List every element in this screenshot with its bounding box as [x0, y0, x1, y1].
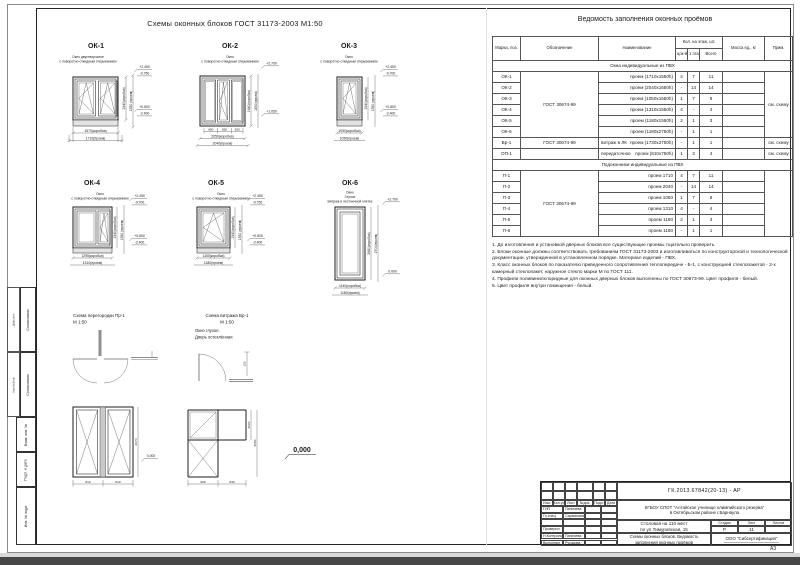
cell-name: проем 1050: [599, 193, 676, 204]
cell-qty-floor0: 4: [676, 72, 688, 83]
vitrage-scheme-vr1: Схема витража Вр-1 М 1:50 Окно глухое. Д…: [188, 313, 257, 487]
table-row: ОК-1ГОСТ 30674-99проем (1710х1550h)4711с…: [493, 72, 793, 83]
cell-mass: [723, 138, 765, 149]
cell-mass: [723, 94, 765, 105]
cell-mark: П-5: [493, 215, 521, 226]
cell-note: см. схему: [765, 72, 793, 138]
svg-text:-0.700: -0.700: [386, 72, 396, 76]
cell-qty-floor0: 2: [676, 116, 688, 127]
cell-mark: П-4: [493, 204, 521, 215]
svg-text:650: 650: [235, 127, 240, 131]
cell-name: проем (1710х1550h): [599, 72, 676, 83]
cell-mass: [723, 226, 765, 237]
cell-mass: [723, 127, 765, 138]
sheet-name: Схемы оконных блоков. Ведомость заполнен…: [617, 533, 711, 546]
svg-text:2050(коробка): 2050(коробка): [211, 134, 233, 138]
svg-text:1140(коробка): 1140(коробка): [339, 284, 361, 288]
cell-designation: ГОСТ 30674-99: [521, 72, 599, 138]
svg-text:-2.400: -2.400: [135, 241, 145, 245]
cell-name: проем 1180: [599, 215, 676, 226]
svg-text:с поворотно-откидным открывани: с поворотно-откидным открыванием: [59, 60, 117, 64]
window-figure-ok1: ОК-1 Окно двустворчатое с поворотно-отки…: [59, 43, 152, 142]
svg-text:-0.750: -0.750: [253, 201, 263, 205]
strip-podp-data: Подп. и дата: [16, 452, 36, 487]
col-note: Прим.: [765, 37, 793, 61]
tb-name: [563, 526, 585, 533]
cell-name: передаточноепроем (810х750h): [599, 149, 676, 160]
window-id-label: ОК-1: [88, 43, 104, 50]
sheets-total: [765, 526, 792, 533]
tb-role: Выполнил: [541, 540, 563, 547]
svg-text:1295(коробка): 1295(коробка): [81, 254, 103, 258]
drawing-sheet: Схемы оконных блоков ГОСТ 31173-2003 М1:…: [0, 0, 800, 565]
cell-qty-floor0: 4: [676, 171, 688, 182]
scan-edge-dark: [0, 557, 800, 565]
svg-text:+2.700: +2.700: [387, 198, 398, 202]
table-group-row: Подоконники индивидуальные из ПВХ: [493, 160, 793, 171]
svg-text:+2.450: +2.450: [252, 194, 263, 198]
svg-text:1180(проем): 1180(проем): [204, 261, 223, 265]
note-item: 5. Цвет профиля внутри помещения - белый…: [492, 284, 794, 290]
svg-text:+0.800: +0.800: [134, 234, 145, 238]
table-row: ОП-1передаточноепроем (810х750h)134см. с…: [493, 149, 793, 160]
svg-text:Окно: Окно: [96, 192, 104, 196]
cell-qty-total: 3: [700, 116, 723, 127]
window-id-label: ОК-4: [84, 180, 100, 187]
svg-text:+2.700: +2.700: [266, 62, 277, 66]
cell-qty-total: 4: [700, 105, 723, 116]
svg-text:-2.400: -2.400: [253, 241, 263, 245]
title-block: Изм. Кол.уч Лист №док. Подп. Дата ГИП Па…: [540, 481, 791, 545]
svg-text:Окно: Окно: [226, 55, 234, 59]
tb-name: Паничева: [563, 506, 585, 513]
cell-qty-floor0: -: [676, 138, 688, 149]
window-figure-ok4: ОК-4 Окно с поворотно-откидным открывани…: [70, 180, 147, 265]
cell-mark: ОК-4: [493, 105, 521, 116]
table-group-row: Окна индивидуальные из ПВХ: [493, 61, 793, 72]
col-qty: Кол. на этаж, шт.: [676, 37, 723, 49]
cell-qty-floor1: 7: [688, 72, 700, 83]
strip-agreed-1-name: Дубровин: [7, 287, 20, 352]
svg-text:+0.800: +0.800: [385, 105, 396, 109]
cell-mark: П-3: [493, 193, 521, 204]
tb-role: Н.Контроль: [541, 533, 563, 540]
svg-text:-2.400: -2.400: [386, 112, 396, 116]
svg-text:Витраж в лестничной клетке: Витраж в лестничной клетке: [328, 200, 373, 204]
cell-qty-floor1: -: [688, 105, 700, 116]
tb-role: Гл.спец: [541, 513, 563, 520]
cell-mark: ОК-2: [493, 83, 521, 94]
strip-agreed-2: Согласовано: [20, 352, 36, 417]
cell-qty-total: 8: [700, 94, 723, 105]
svg-text:-0.700: -0.700: [135, 201, 145, 205]
svg-text:с поворотно-откидным открывани: с поворотно-откидным открыванием: [201, 60, 259, 64]
cell-mark: ОП-1: [493, 149, 521, 160]
cell-qty-floor1: 1: [688, 215, 700, 226]
cell-mass: [723, 204, 765, 215]
svg-text:0,000: 0,000: [147, 454, 156, 458]
format-label: А3: [770, 546, 776, 552]
cell-mark: ОК-5: [493, 116, 521, 127]
table-row: Вр-1ГОСТ 30674-99витраж в ЛКпроем (1730х…: [493, 138, 793, 149]
svg-text:120: 120: [243, 361, 247, 366]
svg-text:Окно: Окно: [346, 191, 354, 195]
svg-text:М 1:50: М 1:50: [220, 320, 234, 325]
cell-qty-total: 1: [700, 226, 723, 237]
strip-agreed-1: Согласовано: [20, 287, 36, 352]
cell-mark: П-2: [493, 182, 521, 193]
strip-vzam-inv: Взам. инв. №: [16, 417, 36, 452]
window-figure-ok3: ОК-3 Окно с поворотно-откидным открывани…: [320, 43, 398, 141]
note-item: 1. До изготовления и установкой дверных …: [492, 243, 794, 249]
tb-name: Сарманаева: [563, 513, 585, 520]
cell-qty-floor1: 7: [688, 171, 700, 182]
cell-qty-floor1: 1: [688, 226, 700, 237]
cell-qty-floor1: 7: [688, 94, 700, 105]
svg-text:2070: 2070: [134, 438, 138, 445]
cell-mass: [723, 149, 765, 160]
window-id-label: ОК-6: [342, 180, 358, 187]
cell-designation: ГОСТ 30674-99: [521, 171, 599, 237]
svg-text:2050: 2050: [253, 439, 257, 446]
cell-mass: [723, 105, 765, 116]
group-label: Окна индивидуальные из ПВХ: [493, 61, 793, 72]
cell-qty-total: 14: [700, 83, 723, 94]
svg-text:1160(коробка): 1160(коробка): [202, 254, 224, 258]
cell-name: проем 2040: [599, 182, 676, 193]
cell-name: проем 1180: [599, 226, 676, 237]
organization-line2: в Октябрьском районе г.Барнаула: [670, 510, 739, 516]
svg-text:Окно двустворчатое: Окно двустворчатое: [72, 55, 104, 59]
svg-text:-2.400: -2.400: [140, 112, 150, 116]
col-floor1: 1 этаж: [688, 49, 700, 61]
cell-qty-floor0: 1: [676, 149, 688, 160]
svg-text:Схема витража Вр-1: Схема витража Вр-1: [205, 313, 249, 318]
openings-table-grid: Марка, поз.ОбозначениеНаименованиеКол. н…: [492, 36, 793, 237]
cell-qty-floor1: -: [688, 204, 700, 215]
svg-text:810: 810: [115, 480, 120, 484]
openings-table: Марка, поз.ОбозначениеНаименованиеКол. н…: [492, 36, 792, 237]
tb-role: ГИП: [541, 506, 563, 513]
cell-mass: [723, 116, 765, 127]
strip-agreed-2-name: Коробейник: [7, 352, 20, 417]
svg-text:+1.050: +1.050: [266, 110, 277, 114]
svg-text:830: 830: [229, 480, 234, 484]
cell-mark: Вр-1: [493, 138, 521, 149]
tb-name: [563, 519, 585, 526]
window-id-label: ОК-2: [222, 43, 238, 50]
cell-qty-floor0: 4: [676, 105, 688, 116]
col-total: Всего: [700, 49, 723, 61]
cell-mark: ОК-3: [493, 94, 521, 105]
svg-text:650: 650: [222, 127, 227, 131]
window-figure-ok6: ОК-6 Окно Глухое Витраж в лестничной кле…: [328, 180, 400, 295]
svg-text:+2.450: +2.450: [134, 194, 145, 198]
note-item: 3. Класс оконных блоков по показателю пр…: [492, 263, 794, 275]
cell-qty-floor0: 1: [676, 193, 688, 204]
svg-text:1310(проем): 1310(проем): [83, 261, 103, 265]
cell-designation: ГОСТ 30674-99: [521, 138, 599, 149]
svg-text:1540(коробка): 1540(коробка): [364, 87, 368, 109]
window-id-label: ОК-3: [341, 43, 357, 50]
svg-text:М 1:50: М 1:50: [73, 320, 87, 325]
svg-text:1180(проем): 1180(проем): [340, 291, 359, 295]
company-name: ООО "Сибсертификация": [711, 533, 792, 546]
cell-name: проем (1310х1550h): [599, 105, 676, 116]
col-designation: Обозначение: [521, 37, 599, 61]
cell-designation: [521, 149, 599, 160]
svg-text:1540(коробка): 1540(коробка): [122, 87, 126, 109]
svg-text:1570(коробка): 1570(коробка): [84, 129, 106, 133]
company-fine-print: [724, 542, 779, 543]
cell-qty-total: 14: [700, 182, 723, 193]
tb-name: Русакова: [563, 540, 585, 547]
cell-mark: ОК-6: [493, 127, 521, 138]
svg-text:1050(коробка): 1050(коробка): [338, 129, 360, 133]
cell-qty-floor0: -: [676, 182, 688, 193]
cell-qty-total: 1: [700, 138, 723, 149]
svg-text:2680(коробка): 2680(коробка): [367, 232, 371, 254]
svg-text:Окно: Окно: [217, 192, 225, 196]
svg-text:1550 (проем): 1550 (проем): [120, 220, 124, 241]
cell-name: проем (1180х1550h): [599, 116, 676, 127]
svg-text:+0.800: +0.800: [252, 234, 263, 238]
svg-text:1550 (проем): 1550 (проем): [129, 91, 133, 112]
window-id-label: ОК-5: [208, 180, 224, 187]
cell-name: проем (1180х2750h): [599, 127, 676, 138]
object-name: Столовая на 110 мест по ул.Тимуровская, …: [617, 520, 711, 533]
cell-mass: [723, 171, 765, 182]
organization-name: КГБОУ СПОТ "Алтайское училище олимпийско…: [617, 500, 792, 520]
svg-text:с поворотно-откидным открывани: с поворотно-откидным открыванием: [71, 197, 129, 201]
cell-mark: П-1: [493, 171, 521, 182]
svg-text:+2.450: +2.450: [385, 65, 396, 69]
cell-qty-total: 8: [700, 193, 723, 204]
table-row: П-1ГОСТ 30674-99проем 17104711: [493, 171, 793, 182]
cell-qty-floor1: 14: [688, 182, 700, 193]
cell-qty-floor1: 1: [688, 127, 700, 138]
cell-name: проем (1050х1550h): [599, 94, 676, 105]
svg-text:2700(проем): 2700(проем): [374, 234, 378, 254]
svg-text:с поворотно-откидным открывани: с поворотно-откидным открыванием: [320, 60, 378, 64]
cell-name: проем 1310: [599, 204, 676, 215]
col-name: Наименование: [599, 37, 676, 61]
cell-qty-floor0: -: [676, 83, 688, 94]
svg-text:Окно: Окно: [345, 55, 353, 59]
cell-qty-floor1: 1: [688, 116, 700, 127]
cell-qty-floor0: 1: [676, 94, 688, 105]
svg-text:650: 650: [208, 127, 213, 131]
svg-text:2040(проем): 2040(проем): [213, 141, 233, 145]
cell-qty-floor1: 7: [688, 193, 700, 204]
svg-text:0,000: 0,000: [293, 447, 311, 454]
col-floor0: цок-й этаж: [676, 49, 688, 61]
svg-text:Глухое: Глухое: [345, 195, 356, 199]
svg-text:1650(проем): 1650(проем): [254, 91, 258, 111]
svg-text:900: 900: [200, 480, 205, 484]
svg-text:с поворотно-откидным открывани: с поворотно-откидным открыванием: [192, 197, 250, 201]
svg-text:810: 810: [85, 480, 90, 484]
tb-role: [541, 519, 563, 526]
cell-qty-total: 1: [700, 127, 723, 138]
general-notes: 1. До изготовления и установкой дверных …: [492, 243, 794, 291]
svg-text:Схема перегородки Пр-1: Схема перегородки Пр-1: [73, 313, 125, 318]
svg-text:+2.450: +2.450: [139, 65, 150, 69]
svg-text:1540(коробка): 1540(коробка): [231, 216, 235, 238]
svg-text:Дверь остеклённая: Дверь остеклённая: [195, 335, 233, 340]
partition-scheme-pr1: Схема перегородки Пр-1 М 1:50 810 810 20…: [73, 313, 158, 487]
note-item: 2. Блоки оконные должны соответствовать …: [492, 250, 794, 262]
svg-text:Окно глухое.: Окно глухое.: [195, 328, 220, 333]
cell-qty-total: 3: [700, 215, 723, 226]
cell-qty-total: 11: [700, 171, 723, 182]
cell-note: см. схему: [765, 149, 793, 160]
cell-name: проем (2040х1650h): [599, 83, 676, 94]
group-label: Подоконники индивидуальные из ПВХ: [493, 160, 793, 171]
svg-text:1640(коробка): 1640(коробка): [247, 90, 251, 112]
col-mark: Марка, поз.: [493, 37, 521, 61]
cell-mark: ОК-1: [493, 72, 521, 83]
svg-text:1550 (проем): 1550 (проем): [238, 220, 242, 241]
svg-text:2000: 2000: [247, 421, 251, 428]
svg-text:0.000: 0.000: [388, 270, 397, 274]
cell-qty-floor1: 14: [688, 83, 700, 94]
cell-qty-floor0: 2: [676, 215, 688, 226]
zero-level-mark: 0,000: [285, 447, 316, 459]
cell-mass: [723, 215, 765, 226]
svg-text:-0.750: -0.750: [140, 72, 150, 76]
strip-inv-podl: Инв. № подл.: [16, 487, 36, 545]
cell-mass: [723, 182, 765, 193]
cell-mass: [723, 193, 765, 204]
svg-text:1710(проем): 1710(проем): [86, 136, 106, 140]
svg-text:1550 (проем): 1550 (проем): [371, 91, 375, 112]
col-mass: Масса ед., кг: [723, 37, 765, 61]
svg-text:+0.800: +0.800: [139, 105, 150, 109]
cell-qty-floor0: 4: [676, 204, 688, 215]
sheet-number: 11: [738, 526, 765, 533]
stage-value: Р: [711, 526, 738, 533]
window-figure-ok5: ОК-5 Окно с поворотно-откидным открывани…: [192, 180, 265, 265]
cell-mass: [723, 72, 765, 83]
document-code: ГК.2013.67842(20-13) - АР: [617, 482, 792, 500]
note-item: 4. Профили поливинилхлоридные для оконны…: [492, 277, 794, 283]
window-figure-ok2: ОК-2 Окно с поворотно-откидным открывани…: [196, 43, 280, 147]
cell-qty-floor1: 3: [688, 149, 700, 160]
cell-qty-total: 4: [700, 204, 723, 215]
cell-name: проем 1710: [599, 171, 676, 182]
cell-name: витраж в ЛКпроем (1730х2750h): [599, 138, 676, 149]
cell-qty-floor1: 1: [688, 138, 700, 149]
cell-qty-total: 4: [700, 149, 723, 160]
tb-name: Паничева: [563, 533, 585, 540]
cell-mark: П-6: [493, 226, 521, 237]
cell-qty-total: 11: [700, 72, 723, 83]
cell-note: [765, 171, 793, 237]
svg-text:1540(коробка): 1540(коробка): [113, 216, 117, 238]
svg-text:1050(проем): 1050(проем): [340, 136, 360, 140]
cell-note: см. схему: [765, 138, 793, 149]
tb-role: Проверил: [541, 526, 563, 533]
cell-mass: [723, 83, 765, 94]
cell-qty-floor0: -: [676, 127, 688, 138]
cell-qty-floor0: -: [676, 226, 688, 237]
